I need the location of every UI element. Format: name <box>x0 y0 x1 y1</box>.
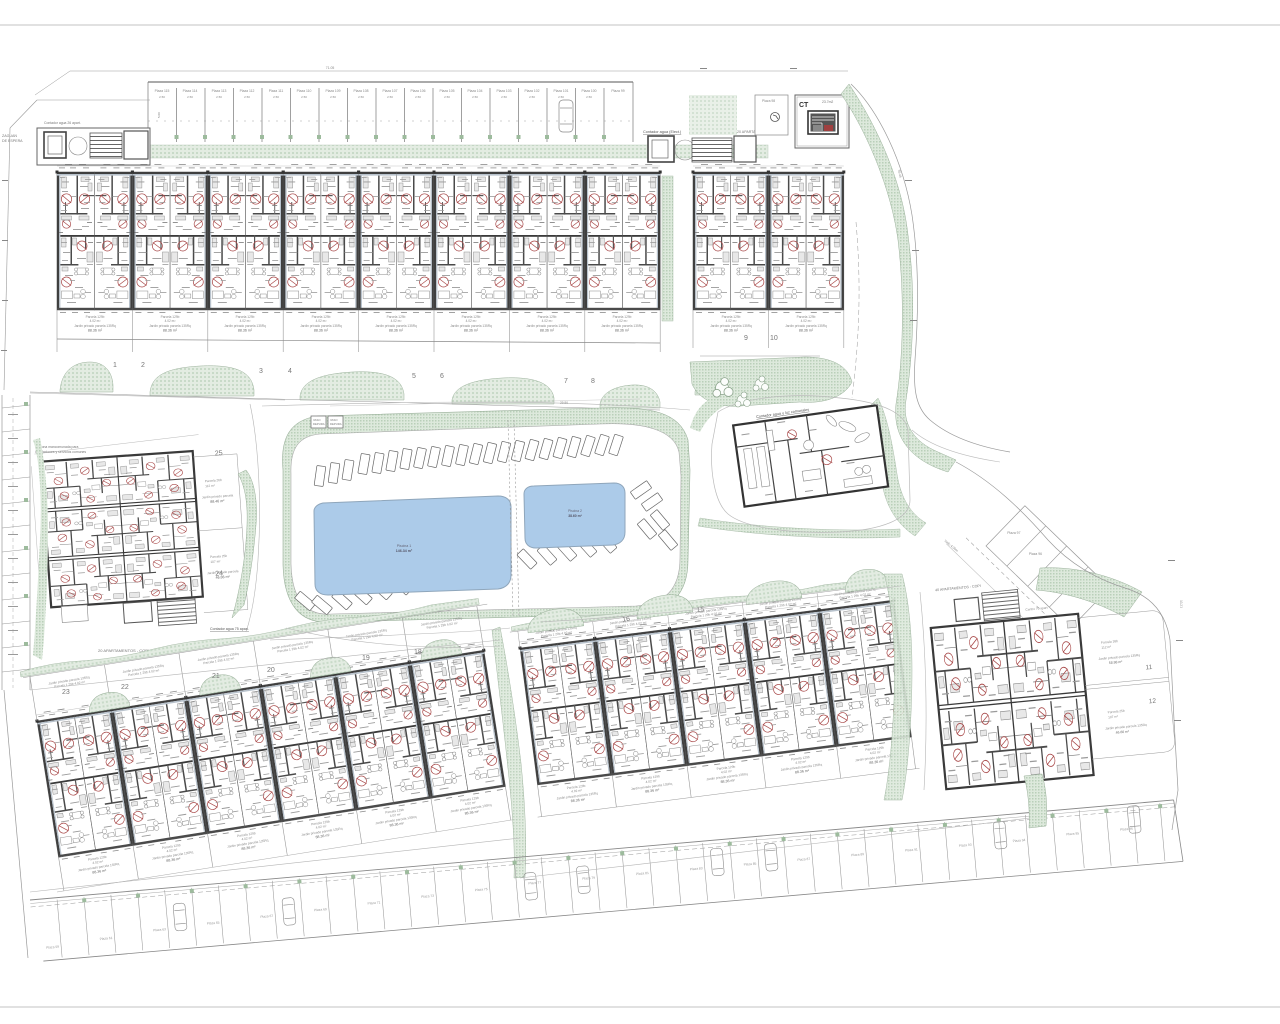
svg-text:2.50: 2.50 <box>387 95 393 99</box>
svg-text:2.50: 2.50 <box>558 95 564 99</box>
svg-text:Piscina 2: Piscina 2 <box>568 509 582 513</box>
svg-text:2: 2 <box>141 362 145 369</box>
svg-text:25: 25 <box>215 450 223 458</box>
svg-text:2.50: 2.50 <box>415 95 421 99</box>
svg-text:Plaza 103: Plaza 103 <box>496 89 511 93</box>
svg-text:6: 6 <box>440 373 444 380</box>
svg-text:CT: CT <box>799 102 809 109</box>
svg-text:Plaza 110: Plaza 110 <box>297 89 312 93</box>
svg-text:20: 20 <box>267 667 275 674</box>
svg-text:Plaza 96: Plaza 96 <box>1029 552 1042 556</box>
svg-text:107 m²: 107 m² <box>210 559 220 564</box>
svg-text:instalaciones y servicios comu: instalaciones y servicios comunes <box>35 450 86 454</box>
svg-text:Plaza 99: Plaza 99 <box>611 89 624 93</box>
svg-text:2.50: 2.50 <box>273 95 279 99</box>
svg-text:Plaza 114: Plaza 114 <box>183 89 198 93</box>
svg-text:Plaza 112: Plaza 112 <box>240 89 255 93</box>
svg-text:2.50: 2.50 <box>216 95 222 99</box>
svg-text:2.50: 2.50 <box>301 95 307 99</box>
svg-text:5: 5 <box>412 373 416 380</box>
svg-text:22: 22 <box>121 684 129 691</box>
svg-text:Contador agua 26 apart.: Contador agua 26 apart. <box>44 121 81 125</box>
svg-text:Plaza 108: Plaza 108 <box>353 89 368 93</box>
svg-text:Plaza 102: Plaza 102 <box>524 89 539 93</box>
svg-text:Plaza 100: Plaza 100 <box>581 89 596 93</box>
svg-text:2.50: 2.50 <box>444 95 450 99</box>
svg-text:24: 24 <box>215 570 223 578</box>
svg-text:Plaza 105: Plaza 105 <box>439 89 454 93</box>
svg-text:Plaza 101: Plaza 101 <box>553 89 568 93</box>
svg-text:Plaza 107: Plaza 107 <box>382 89 397 93</box>
svg-text:23: 23 <box>62 689 70 696</box>
svg-text:8: 8 <box>591 378 595 385</box>
svg-text:3: 3 <box>259 368 263 375</box>
svg-text:11: 11 <box>1145 664 1153 672</box>
svg-text:Plaza 98: Plaza 98 <box>762 99 775 103</box>
svg-text:Contador agua 75 apart.: Contador agua 75 apart. <box>210 627 249 631</box>
svg-text:12: 12 <box>1149 698 1157 706</box>
svg-text:9: 9 <box>744 335 748 342</box>
svg-text:2.50: 2.50 <box>586 95 592 99</box>
svg-text:Plaza 104: Plaza 104 <box>467 89 482 93</box>
svg-text:23.7m2: 23.7m2 <box>822 100 833 104</box>
svg-text:Plaza 106: Plaza 106 <box>410 89 425 93</box>
svg-text:5.00: 5.00 <box>157 112 161 118</box>
svg-text:33.21: 33.21 <box>1179 600 1183 608</box>
svg-text:2.50: 2.50 <box>501 95 507 99</box>
svg-text:38.60 m²: 38.60 m² <box>568 514 582 518</box>
svg-text:4: 4 <box>288 368 292 375</box>
svg-text:7: 7 <box>564 378 568 385</box>
svg-text:Plaza 109: Plaza 109 <box>325 89 340 93</box>
svg-text:2.50: 2.50 <box>159 95 165 99</box>
svg-text:2.50: 2.50 <box>244 95 250 99</box>
svg-text:2.50: 2.50 <box>472 95 478 99</box>
svg-text:Plaza 111: Plaza 111 <box>269 89 284 93</box>
svg-text:71.05: 71.05 <box>326 66 335 70</box>
svg-text:2.50: 2.50 <box>187 95 193 99</box>
svg-text:1: 1 <box>113 362 117 369</box>
svg-text:Contador agua (Elect.): Contador agua (Elect.) <box>643 130 682 134</box>
svg-text:19: 19 <box>362 655 370 662</box>
svg-text:2.50: 2.50 <box>529 95 535 99</box>
svg-text:21: 21 <box>212 673 220 680</box>
svg-text:112 m²: 112 m² <box>205 484 215 489</box>
svg-text:DE ESPERA: DE ESPERA <box>2 139 23 143</box>
svg-text:DEPURA: DEPURA <box>330 422 342 426</box>
svg-text:2.50: 2.50 <box>330 95 336 99</box>
svg-text:Piscina 1: Piscina 1 <box>397 544 412 548</box>
svg-text:Plaza 115: Plaza 115 <box>155 89 170 93</box>
svg-text:18: 18 <box>414 649 422 656</box>
svg-text:Plaza 97: Plaza 97 <box>1007 531 1020 535</box>
svg-text:146.34 m²: 146.34 m² <box>396 549 413 553</box>
svg-text:10: 10 <box>770 335 778 342</box>
svg-text:2.50: 2.50 <box>358 95 364 99</box>
svg-text:DEPURA: DEPURA <box>313 422 325 426</box>
svg-text:Plaza 113: Plaza 113 <box>212 89 227 93</box>
